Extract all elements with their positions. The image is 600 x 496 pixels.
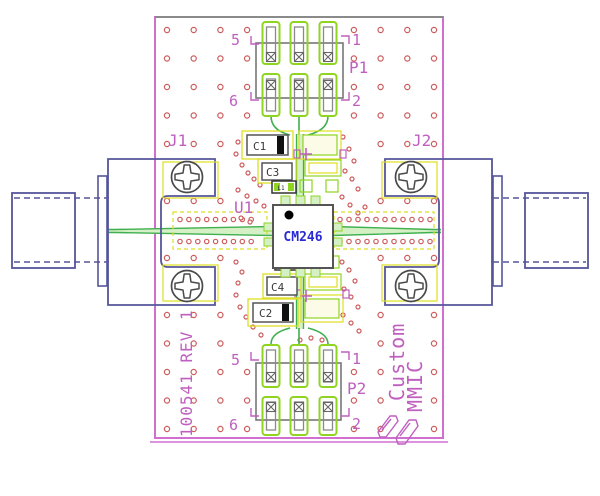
via xyxy=(231,239,235,243)
j2-barrel xyxy=(525,193,588,268)
via xyxy=(378,312,383,317)
p1-pin2-label: 2 xyxy=(352,92,361,110)
via xyxy=(392,239,396,243)
via xyxy=(365,217,369,221)
via xyxy=(431,198,436,203)
via xyxy=(213,217,217,221)
brand-text-mmic: MMIC xyxy=(403,360,427,412)
j2-hidden-edges xyxy=(493,198,586,262)
j1-screw-top[interactable] xyxy=(172,162,203,193)
via xyxy=(213,239,217,243)
via xyxy=(374,239,378,243)
via xyxy=(164,113,169,118)
via xyxy=(218,198,223,203)
j2-screw-top[interactable] xyxy=(396,162,427,193)
j1-screw-bottom[interactable] xyxy=(172,271,203,302)
via xyxy=(383,217,387,221)
via xyxy=(178,217,182,221)
c2-label: C2 xyxy=(259,307,272,320)
via xyxy=(378,113,383,118)
header-p2[interactable]: 5 1 6 2 P2 xyxy=(229,345,366,435)
via xyxy=(187,217,191,221)
via xyxy=(222,217,226,221)
via xyxy=(341,135,345,139)
p2-pin1-label: 1 xyxy=(352,350,361,368)
p2-pads xyxy=(263,345,337,435)
pin1-dot-icon xyxy=(285,211,294,220)
via xyxy=(347,239,351,243)
via xyxy=(205,217,209,221)
via xyxy=(218,141,223,146)
via xyxy=(357,329,361,333)
via xyxy=(245,369,250,374)
via xyxy=(338,217,342,221)
via xyxy=(383,239,387,243)
via xyxy=(218,312,223,317)
via xyxy=(191,56,196,61)
via xyxy=(164,369,169,374)
capacitor-c1[interactable]: C1 xyxy=(242,131,293,159)
via xyxy=(431,426,436,431)
u1-refdes: U1 xyxy=(234,198,253,217)
c2-polarity-stripe xyxy=(282,304,289,321)
via xyxy=(196,217,200,221)
via xyxy=(356,187,360,191)
chip-part-number: CM246 xyxy=(283,230,322,245)
c1-polarity-stripe xyxy=(277,136,284,154)
via xyxy=(245,56,250,61)
via xyxy=(431,56,436,61)
via xyxy=(356,239,360,243)
via xyxy=(164,426,169,431)
via xyxy=(164,255,169,260)
p2-pin5-label: 5 xyxy=(231,351,240,369)
custom-mmic-logo xyxy=(378,416,418,444)
via xyxy=(401,239,405,243)
via xyxy=(240,270,244,274)
via xyxy=(187,239,191,243)
header-p1[interactable]: 5 1 6 2 P1 xyxy=(229,22,368,116)
via xyxy=(353,279,357,283)
via xyxy=(347,268,351,272)
via xyxy=(164,84,169,89)
via xyxy=(236,188,240,192)
via xyxy=(164,341,169,346)
via xyxy=(350,177,354,181)
via xyxy=(191,198,196,203)
via xyxy=(236,281,240,285)
board-part-number: 100541 REV 1 xyxy=(177,309,196,437)
via xyxy=(431,255,436,260)
via xyxy=(254,199,258,203)
j1-barrel xyxy=(12,193,75,268)
via xyxy=(240,163,244,167)
c3-label: C3 xyxy=(266,166,279,179)
via xyxy=(405,198,410,203)
via xyxy=(234,293,238,297)
via xyxy=(222,239,226,243)
via xyxy=(262,204,266,208)
via xyxy=(245,27,250,32)
via xyxy=(431,27,436,32)
capacitor-c2[interactable]: C2 xyxy=(248,299,298,326)
chip-u1[interactable]: CM246 xyxy=(264,196,342,277)
inductor-l1[interactable]: L1 xyxy=(272,181,296,193)
via xyxy=(191,84,196,89)
via xyxy=(374,217,378,221)
via xyxy=(378,56,383,61)
p2-pin6-label: 6 xyxy=(229,416,238,434)
via xyxy=(356,217,360,221)
via xyxy=(218,84,223,89)
c4-label: C4 xyxy=(271,281,285,294)
via xyxy=(191,113,196,118)
via xyxy=(347,217,351,221)
via xyxy=(431,113,436,118)
via xyxy=(392,217,396,221)
l1-label: L1 xyxy=(277,185,285,192)
via xyxy=(347,147,351,151)
via xyxy=(218,341,223,346)
via xyxy=(218,113,223,118)
p1-pin6-label: 6 xyxy=(229,92,238,110)
via xyxy=(164,198,169,203)
via xyxy=(231,217,235,221)
via xyxy=(431,398,436,403)
via xyxy=(218,255,223,260)
via xyxy=(356,305,360,309)
via xyxy=(348,203,352,207)
via xyxy=(191,141,196,146)
via xyxy=(164,56,169,61)
p2-pin2-label: 2 xyxy=(352,415,361,433)
via xyxy=(405,255,410,260)
via xyxy=(351,113,356,118)
via xyxy=(218,398,223,403)
via xyxy=(378,141,383,146)
via xyxy=(378,255,383,260)
via xyxy=(191,27,196,32)
via xyxy=(431,341,436,346)
via xyxy=(419,217,423,221)
via xyxy=(240,239,244,243)
via xyxy=(378,198,383,203)
via xyxy=(405,113,410,118)
via xyxy=(236,140,240,144)
via xyxy=(431,84,436,89)
via xyxy=(352,159,356,163)
via xyxy=(246,171,250,175)
via xyxy=(428,239,432,243)
p1-refdes: P1 xyxy=(349,58,368,77)
via xyxy=(378,84,383,89)
via xyxy=(405,84,410,89)
via xyxy=(405,141,410,146)
p2-refdes: P2 xyxy=(347,379,366,398)
via xyxy=(191,255,196,260)
via xyxy=(405,56,410,61)
via xyxy=(245,113,250,118)
via xyxy=(218,369,223,374)
via xyxy=(343,169,347,173)
via xyxy=(309,336,313,340)
via xyxy=(252,177,256,181)
via xyxy=(405,27,410,32)
via xyxy=(340,195,344,199)
c1-label: C1 xyxy=(253,140,266,153)
via xyxy=(410,217,414,221)
via xyxy=(218,56,223,61)
via xyxy=(351,398,356,403)
j2-refdes: J2 xyxy=(412,131,431,150)
p1-pads xyxy=(263,22,337,116)
via xyxy=(234,260,238,264)
via xyxy=(378,27,383,32)
via xyxy=(431,312,436,317)
via xyxy=(340,260,344,264)
j1-refdes: J1 xyxy=(168,131,187,150)
via xyxy=(245,398,250,403)
via xyxy=(196,239,200,243)
via xyxy=(431,369,436,374)
pcb-layout-view: 5 1 6 2 P1 5 1 6 2 P2 J1 xyxy=(0,0,600,496)
capacitor-c4[interactable]: C4 xyxy=(263,274,301,298)
via xyxy=(164,27,169,32)
via xyxy=(378,398,383,403)
p1-pin5-label: 5 xyxy=(231,31,240,49)
via xyxy=(164,398,169,403)
via xyxy=(259,333,263,337)
j2-flange xyxy=(493,176,502,286)
via xyxy=(349,321,353,325)
via xyxy=(365,239,369,243)
via xyxy=(218,426,223,431)
j2-screw-bottom[interactable] xyxy=(396,271,427,302)
p1-corner-marks xyxy=(251,36,349,100)
via xyxy=(378,341,383,346)
p2-stem-traces xyxy=(271,328,328,344)
j1-hidden-edges xyxy=(14,198,107,262)
j1-flange xyxy=(98,176,107,286)
via xyxy=(320,338,324,342)
via xyxy=(234,152,238,156)
via xyxy=(378,369,383,374)
via xyxy=(249,239,253,243)
via xyxy=(164,312,169,317)
capacitor-c3[interactable]: C3 xyxy=(258,159,296,183)
via xyxy=(349,295,353,299)
via xyxy=(178,239,182,243)
via xyxy=(401,217,405,221)
via xyxy=(245,84,250,89)
p1-pin1-label: 1 xyxy=(352,31,361,49)
via xyxy=(431,141,436,146)
via xyxy=(245,426,250,431)
via xyxy=(410,239,414,243)
via xyxy=(428,217,432,221)
via xyxy=(238,305,242,309)
pcb-drawing-canvas: 5 1 6 2 P1 5 1 6 2 P2 J1 xyxy=(0,0,600,496)
via xyxy=(351,369,356,374)
via xyxy=(218,27,223,32)
via xyxy=(248,220,252,224)
via xyxy=(363,205,367,209)
via xyxy=(205,239,209,243)
via xyxy=(351,84,356,89)
via xyxy=(419,239,423,243)
